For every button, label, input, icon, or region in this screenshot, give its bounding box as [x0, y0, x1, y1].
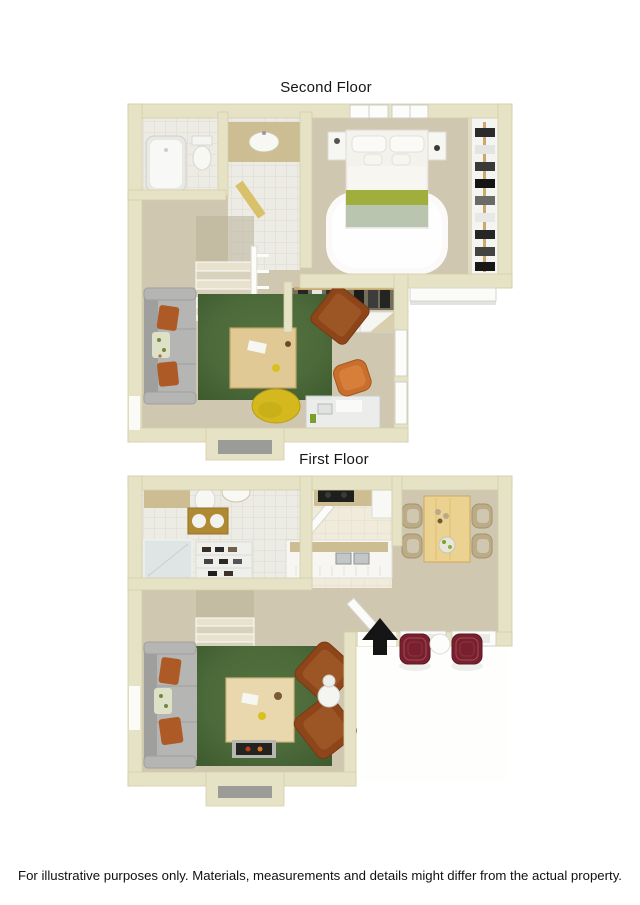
loft-window — [395, 330, 407, 376]
throw-pillow — [157, 361, 179, 387]
toilet-tank — [192, 136, 212, 145]
sink-basin — [336, 553, 351, 564]
cup — [435, 509, 441, 515]
second-floor-plan — [128, 104, 512, 460]
throw-pillow — [158, 717, 183, 746]
floor-plan-page: Second Floor First Floor For illustrativ… — [0, 0, 640, 905]
living-side-window — [129, 686, 140, 730]
coffee-table — [226, 678, 294, 742]
stair-step — [196, 618, 254, 626]
vase — [323, 675, 335, 687]
wall-left — [128, 104, 142, 442]
patio-chair — [400, 634, 430, 664]
bed — [346, 130, 428, 228]
living-room — [144, 639, 360, 768]
wall-bath-right — [300, 476, 312, 590]
wall-bath-bottom — [128, 190, 226, 200]
wall-left — [128, 476, 142, 786]
wall-top — [128, 104, 512, 118]
loft-side-door — [129, 396, 140, 430]
sage-blanket — [346, 205, 428, 227]
wall-bath-bottom — [128, 578, 312, 590]
loft-sofa — [144, 288, 196, 404]
wall-patio-left — [344, 632, 356, 786]
accent-pillow — [364, 154, 382, 165]
sink-basin — [354, 553, 369, 564]
stair-step — [196, 262, 254, 271]
stair-landing — [196, 588, 254, 618]
cup — [443, 513, 449, 519]
floral-throw — [154, 688, 172, 714]
wall-right — [498, 104, 512, 288]
shoe-closet — [196, 542, 252, 580]
burner — [325, 492, 331, 498]
pillow-right — [390, 136, 424, 152]
paper — [336, 400, 362, 412]
toilet-bowl — [193, 146, 211, 170]
cup — [258, 712, 266, 720]
bay-window-shadow — [410, 301, 496, 305]
wardrobe-divider — [468, 118, 472, 274]
wall-top — [128, 476, 512, 490]
patio-floor — [356, 646, 506, 782]
coffee-table — [230, 328, 296, 388]
alarm-clock — [434, 145, 440, 151]
bowl — [274, 692, 282, 700]
floor-plan-graphic — [0, 0, 640, 905]
bowl — [285, 341, 291, 347]
laptop — [318, 404, 332, 414]
living-sofa — [144, 642, 197, 768]
fireplace-chase-interior — [218, 440, 272, 454]
table-plant — [439, 537, 455, 553]
faucet — [262, 131, 266, 135]
green-throw — [346, 190, 428, 205]
pillow-left — [352, 136, 386, 152]
refrigerator — [372, 490, 392, 518]
stair-step — [196, 280, 254, 289]
stair-step — [196, 626, 254, 634]
stair-step — [196, 634, 254, 642]
patio-table — [430, 634, 450, 654]
patio-chair — [452, 634, 482, 664]
wall-bedroom-left — [300, 112, 312, 268]
basin — [210, 514, 224, 528]
cup — [438, 519, 443, 524]
fireplace-firebox — [236, 743, 272, 755]
burner — [341, 492, 347, 498]
wall-closet-stub — [284, 282, 292, 332]
wall-right — [498, 476, 512, 646]
accent-pillow — [392, 154, 410, 165]
throw-pillow — [156, 305, 179, 332]
bathtub-drain — [164, 148, 168, 152]
throw-pillow — [158, 657, 181, 686]
duvet — [348, 166, 426, 192]
floral-throw — [152, 332, 170, 358]
bathtub-basin — [150, 140, 182, 188]
bean-bag-shade — [258, 402, 282, 418]
hanging-clothes — [475, 128, 495, 271]
first-floor-plan — [128, 476, 512, 806]
loft-window — [395, 382, 407, 424]
desk — [306, 396, 380, 428]
bedroom — [326, 118, 495, 274]
side-table — [318, 685, 340, 707]
stair-landing — [196, 216, 254, 262]
fire-glow — [246, 747, 251, 752]
nightstand-left — [328, 132, 346, 160]
wall-kitchen-dining — [392, 476, 402, 546]
stair-step — [196, 271, 254, 280]
desk-plant — [310, 414, 316, 423]
range — [318, 489, 354, 502]
basin — [192, 514, 206, 528]
cup — [272, 364, 280, 372]
fireplace-chase-interior — [218, 786, 272, 798]
lamp — [334, 138, 340, 144]
wall-bath-divider — [218, 112, 228, 196]
fire-glow — [258, 747, 263, 752]
bay-window — [410, 288, 496, 301]
